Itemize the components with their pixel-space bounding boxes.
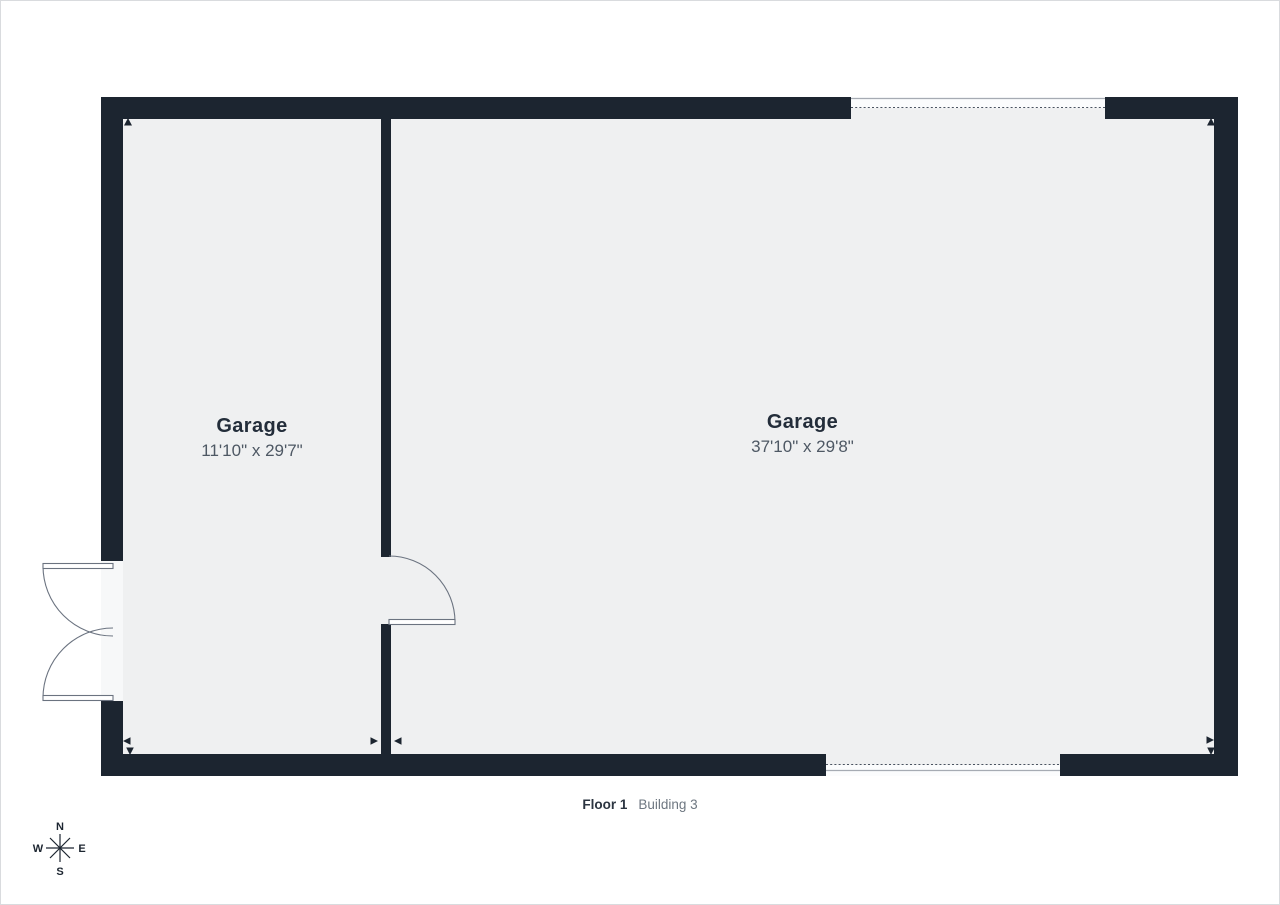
compass-rose: N S W E [33,821,86,878]
building-label: Building 3 [638,797,697,812]
doorway-gap-interior-wall [381,557,391,624]
garage-door-top [851,97,1105,119]
compass-label-south: S [56,866,63,878]
garage-left-floor [123,119,381,754]
door-panel-bottom [43,696,113,701]
garage-door-bottom [826,754,1060,776]
floorplan-canvas: N S W E Garage 11'10" x 29'7" Garage 37'… [0,0,1280,905]
compass-label-west: W [33,843,44,855]
garage-door-top-inner [851,108,1105,119]
compass-label-east: E [78,843,85,855]
floor-label: Floor 1 [582,797,627,812]
doorway-gap-left-wall [101,561,123,701]
garage-door-bottom-inner [826,754,1060,765]
floorplan-drawing: N S W E [1,1,1280,905]
plan-caption: Floor 1 Building 3 [1,797,1279,812]
compass-label-north: N [56,821,64,833]
door-panel-top [43,564,113,569]
garage-right-floor [391,119,1214,754]
door-panel-interior [389,620,455,625]
